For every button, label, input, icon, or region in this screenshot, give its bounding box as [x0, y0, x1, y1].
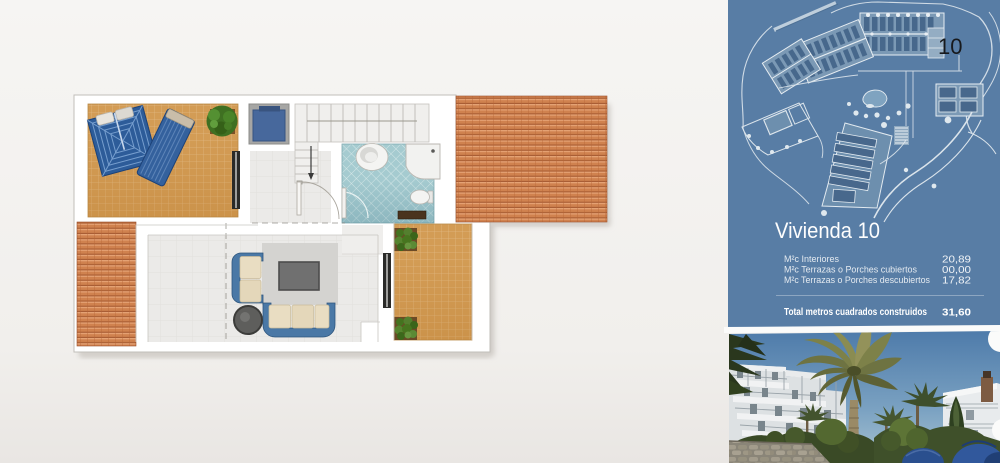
svg-text:M²c Terrazas o Porches cubiert: M²c Terrazas o Porches cubiertos — [784, 265, 917, 275]
svg-text:00,00: 00,00 — [942, 265, 972, 276]
svg-text:Total metros cuadrados constru: Total metros cuadrados construidos — [784, 307, 927, 318]
svg-text:20,89: 20,89 — [942, 255, 972, 266]
svg-text:10: 10 — [938, 34, 962, 59]
svg-text:31,60: 31,60 — [942, 308, 971, 319]
svg-text:M²c Interiores: M²c Interiores — [784, 254, 839, 264]
svg-text:Vivienda 10: Vivienda 10 — [775, 218, 880, 243]
svg-text:17,82: 17,82 — [942, 276, 972, 287]
svg-text:M²c Terrazas o Porches descubi: M²c Terrazas o Porches descubiertos — [784, 275, 930, 285]
